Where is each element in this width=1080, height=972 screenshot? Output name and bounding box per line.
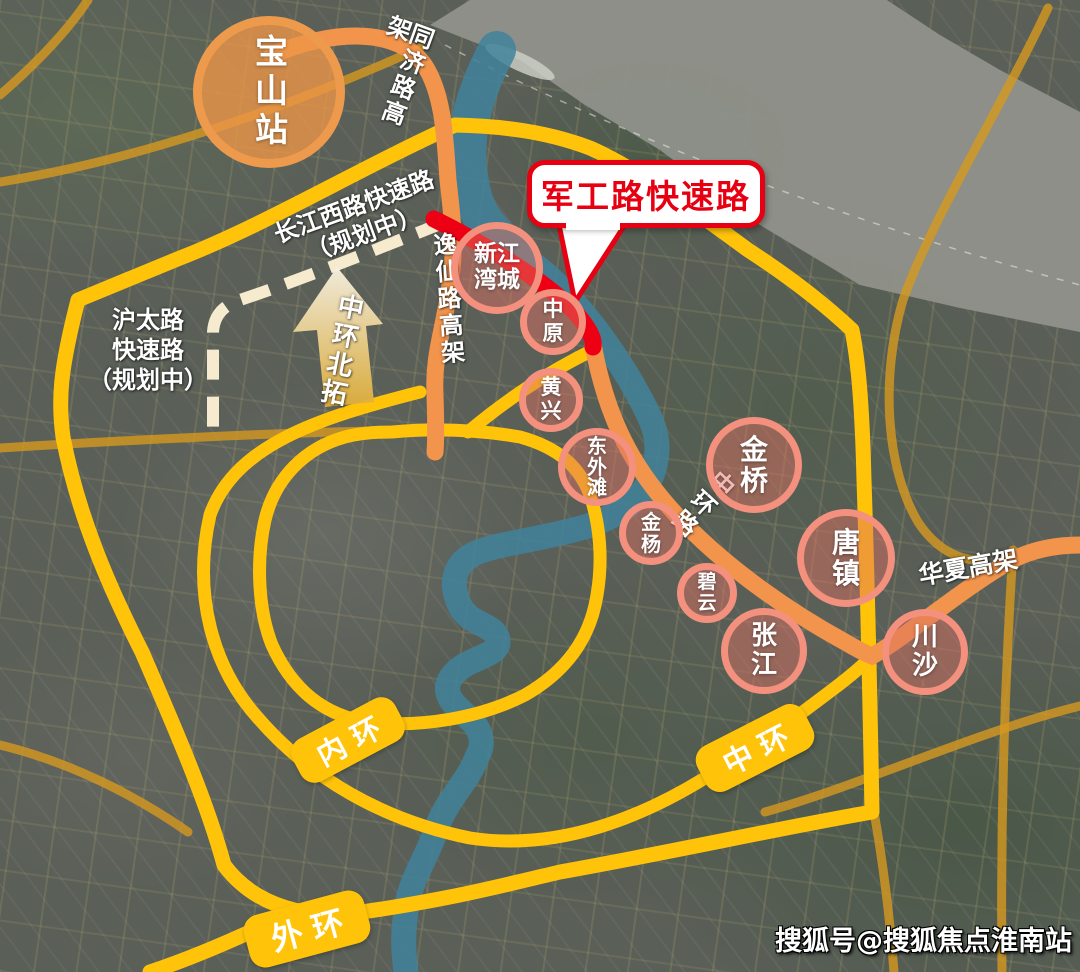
inner-ring-road bbox=[260, 430, 601, 724]
district-circle-huangxing: 黄 兴 bbox=[519, 368, 583, 432]
hutai-planned-label: 沪太路 快速路 （规划中） bbox=[88, 305, 208, 395]
jungong-expressway-callout: 军工路快速路 bbox=[527, 160, 765, 228]
district-circle-biyun: 碧 云 bbox=[677, 563, 737, 623]
baoshan-station-label: 宝山站 bbox=[253, 34, 286, 151]
shanghai-expressway-map: 同济路高架 逸仙路高架 中环路 华夏高架 长江西路快速路 （规划中） 沪太路 快… bbox=[0, 0, 1080, 972]
district-circle-jinqiao: 金 桥 bbox=[706, 417, 802, 513]
district-circle-jinyang: 金 杨 bbox=[619, 501, 683, 565]
district-circle-zhangjiang: 张 江 bbox=[721, 608, 807, 694]
callout-tail-joint bbox=[566, 219, 620, 230]
jungong-expressway-callout-label: 军工路快速路 bbox=[541, 170, 751, 218]
district-circle-tangzhen: 唐 镇 bbox=[797, 509, 895, 607]
district-circle-dongwaitan: 东 外 滩 bbox=[558, 428, 636, 506]
district-circle-chuansha: 川 沙 bbox=[882, 609, 968, 695]
map-layers bbox=[0, 0, 1080, 972]
district-circle-zhongyuan: 中 原 bbox=[520, 289, 586, 355]
baoshan-station-circle: 宝山站 bbox=[193, 16, 345, 168]
watermark-text: 搜狐号@搜狐焦点淮南站 bbox=[775, 919, 1072, 958]
